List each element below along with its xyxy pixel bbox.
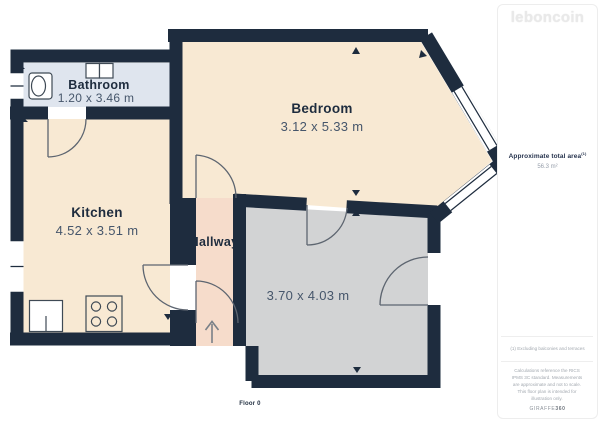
- bedroom-label: Bedroom: [291, 101, 352, 116]
- sink-fixture: [86, 64, 113, 79]
- bedroom-dimensions: 3.12 x 5.33 m: [281, 119, 364, 134]
- kitchen-window: [11, 240, 24, 293]
- sidebar-divider: [501, 361, 593, 362]
- wall-kitchen-hallway-lower: [170, 310, 196, 346]
- bathroom-window: [11, 72, 24, 100]
- total-area-label-text: Approximate total area: [509, 153, 582, 160]
- giraffe360-logo-suffix: 360: [555, 406, 565, 412]
- info-sidebar: leboncoin Approximate total area(1) 56.3…: [497, 4, 598, 419]
- area-footnote: (1) Excluding balconies and terraces: [498, 346, 597, 351]
- wall-kitchen-hallway-upper: [170, 198, 196, 265]
- total-area-block: Approximate total area(1) 56.3 m²: [498, 151, 597, 170]
- floor-plan-page: { "brand": { "logo_text": "leboncoin" },…: [0, 0, 600, 424]
- sidebar-divider: [501, 336, 593, 337]
- giraffe360-logo-name: GIRAFFE: [529, 406, 555, 412]
- kitchen-dimensions: 4.52 x 3.51 m: [56, 223, 139, 238]
- giraffe360-logo: GIRAFFE360: [498, 406, 597, 412]
- bathroom-dimensions: 1.20 x 3.46 m: [58, 91, 135, 105]
- leboncoin-logo: leboncoin: [498, 9, 597, 26]
- kitchen-sink-fixture: [30, 301, 63, 332]
- floor-label: Floor 0: [210, 401, 290, 407]
- disclaimer-text: Calculations reference the RICS IPMS 3C …: [508, 368, 586, 402]
- hallway-label: Hallway: [190, 235, 239, 249]
- total-area-footnote-marker: (1): [581, 151, 586, 156]
- gray-room-dimensions: 3.70 x 4.03 m: [267, 288, 350, 303]
- bathroom-label: Bathroom: [68, 78, 129, 92]
- toilet-fixture: [29, 73, 52, 99]
- kitchen-label: Kitchen: [71, 205, 123, 220]
- total-area-value: 56.3 m²: [498, 164, 597, 170]
- total-area-label: Approximate total area(1): [498, 151, 597, 160]
